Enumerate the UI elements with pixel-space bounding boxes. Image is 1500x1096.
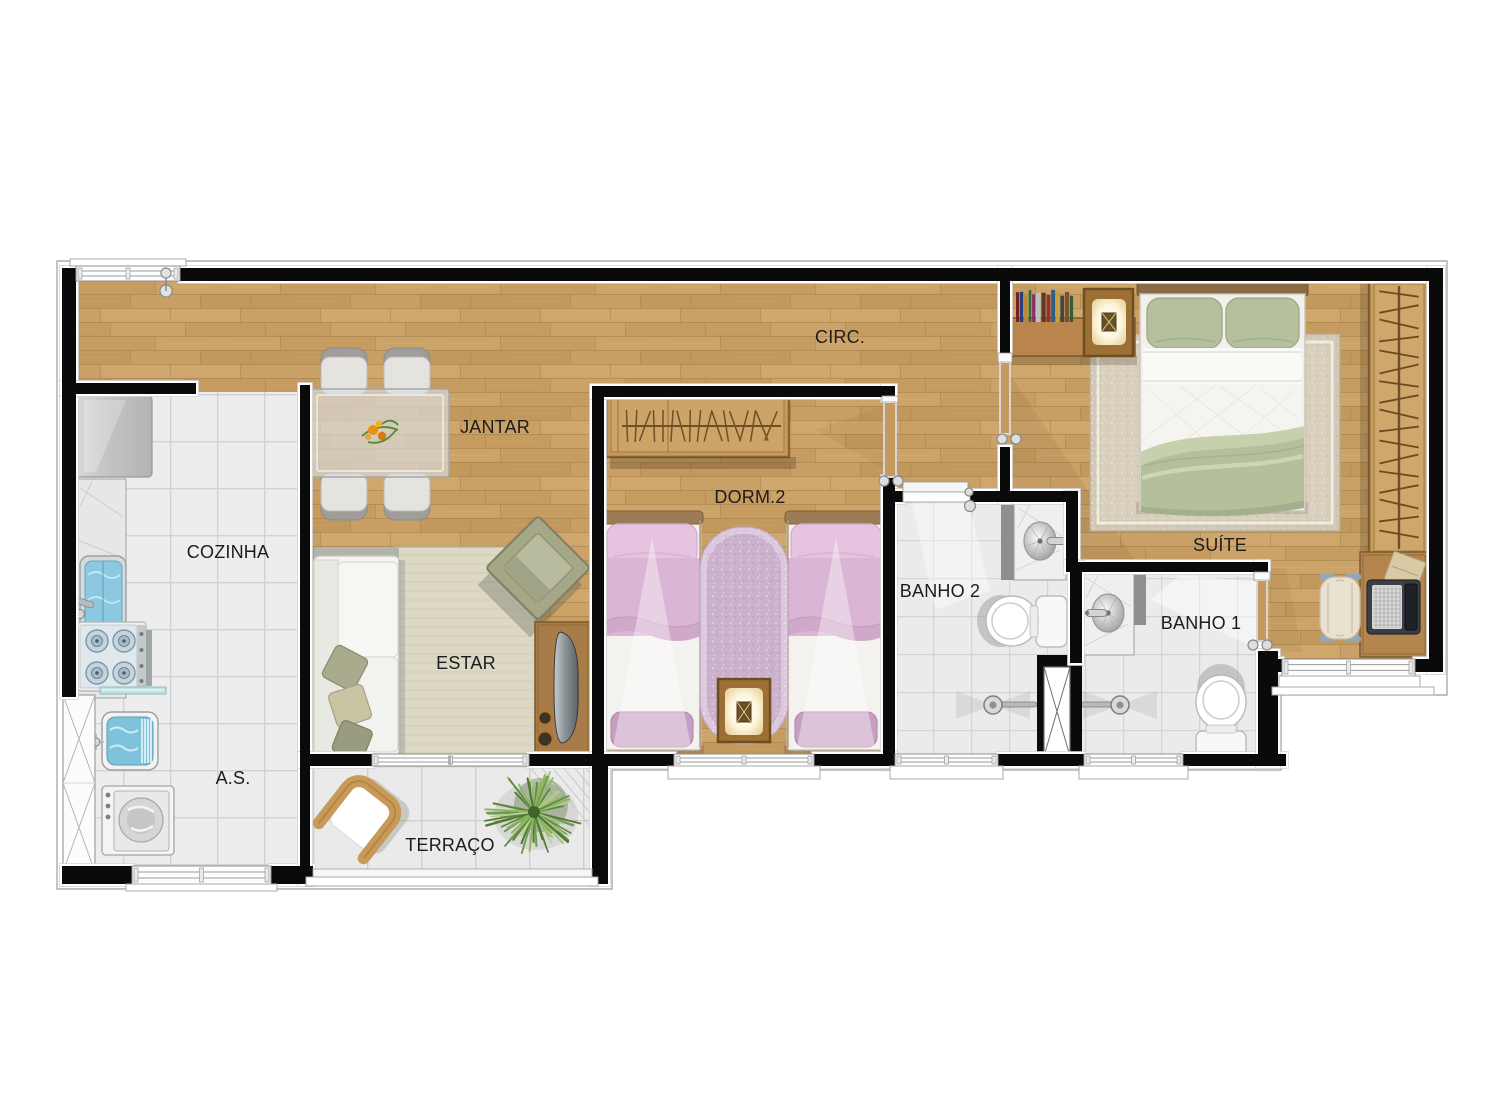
svg-text:BANHO 2: BANHO 2 <box>900 581 980 601</box>
svg-text:JANTAR: JANTAR <box>460 417 530 437</box>
svg-text:BANHO 1: BANHO 1 <box>1161 613 1241 633</box>
svg-text:CIRC.: CIRC. <box>815 327 865 347</box>
svg-text:A.S.: A.S. <box>216 768 251 788</box>
svg-text:ESTAR: ESTAR <box>436 653 496 673</box>
svg-text:TERRAÇO: TERRAÇO <box>405 835 494 855</box>
svg-text:COZINHA: COZINHA <box>187 542 269 562</box>
svg-text:SUÍTE: SUÍTE <box>1193 535 1247 555</box>
svg-text:DORM.2: DORM.2 <box>714 487 785 507</box>
